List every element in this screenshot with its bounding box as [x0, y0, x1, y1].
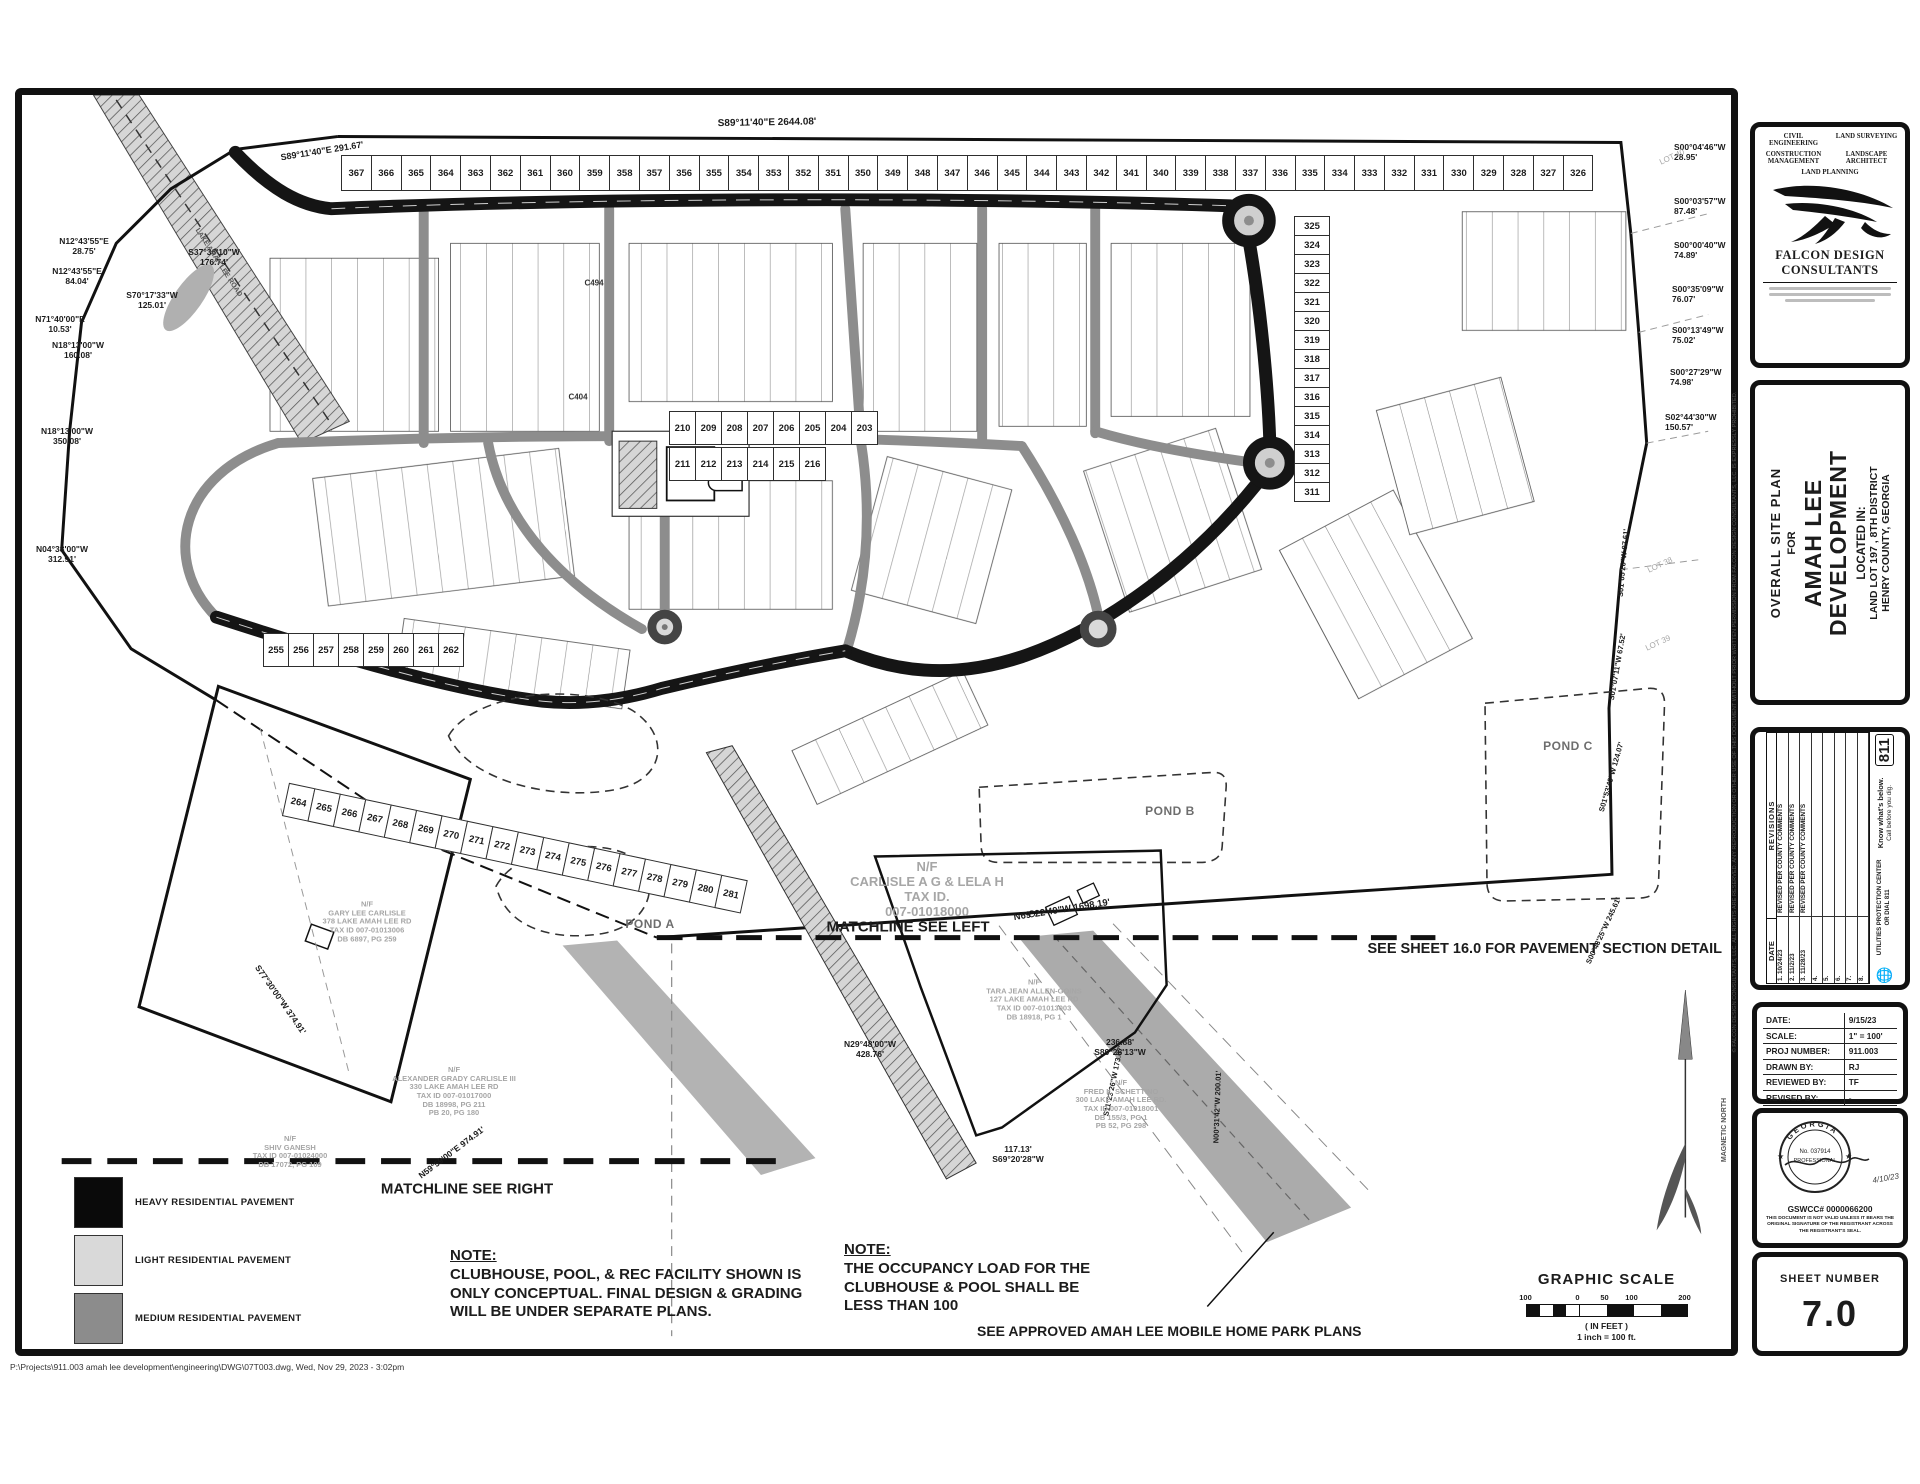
- bearing-label: N71°40'00"E10.53': [35, 315, 85, 335]
- revisions-title: REVISIONS: [1767, 733, 1776, 918]
- lot-number: 357: [639, 155, 670, 191]
- lot-number: 318: [1294, 349, 1330, 369]
- lot-number: 349: [877, 155, 908, 191]
- revision-desc: [1846, 733, 1857, 916]
- pond-label: POND C: [1543, 740, 1593, 754]
- lot-number: 344: [1026, 155, 1057, 191]
- lot-number: 209: [695, 411, 722, 445]
- info-label: PROJ NUMBER:: [1763, 1046, 1844, 1056]
- slogan-line1: Know what's below.: [1876, 777, 1885, 848]
- lot-number: 366: [371, 155, 402, 191]
- info-row: DATE:9/15/23: [1763, 1013, 1897, 1029]
- lot-number: 213: [721, 447, 748, 481]
- lot-number: 345: [997, 155, 1028, 191]
- lot-number: 326: [1563, 155, 1594, 191]
- for-label: FOR: [1786, 393, 1798, 693]
- info-value: RJ: [1844, 1060, 1897, 1075]
- lot-number: 321: [1294, 292, 1330, 312]
- legend-swatch: [74, 1235, 123, 1286]
- lot-number: 346: [967, 155, 998, 191]
- lot-number: 255: [263, 633, 289, 667]
- revision-date: 4.: [1812, 916, 1823, 983]
- bearing-label: N00°31'42"W 200.01': [1212, 1071, 1223, 1144]
- lot-number: 340: [1146, 155, 1177, 191]
- lot-number: 317: [1294, 368, 1330, 388]
- revision-desc: [1858, 733, 1869, 916]
- lot-number: 351: [818, 155, 849, 191]
- note-heading: NOTE:: [450, 1247, 880, 1266]
- revisions-header: DATE REVISIONS: [1767, 733, 1777, 983]
- lot-number: 329: [1473, 155, 1504, 191]
- revision-date: 6.: [1835, 916, 1846, 983]
- info-label: SCALE:: [1763, 1031, 1844, 1041]
- revision-row: 1. 10/24/23REVISED PER COUNTY COMMENTS: [1777, 733, 1789, 983]
- service-item: LANDSCAPE ARCHITECT: [1832, 151, 1901, 166]
- info-value: 911.003: [1844, 1044, 1897, 1059]
- info-block: DATE:9/15/23SCALE:1" = 100'PROJ NUMBER:9…: [1752, 1002, 1908, 1104]
- lot-number: 320: [1294, 311, 1330, 331]
- county: HENRY COUNTY, GEORGIA: [1880, 393, 1892, 693]
- revision-desc: REVISED PER COUNTY COMMENTS: [1789, 733, 1800, 916]
- firm-name-line1: FALCON DESIGN: [1775, 248, 1884, 262]
- lot-number: 333: [1354, 155, 1385, 191]
- lot-number: 358: [609, 155, 640, 191]
- revisions-rows: 1. 10/24/23REVISED PER COUNTY COMMENTS2.…: [1777, 733, 1869, 983]
- lot-number: 205: [799, 411, 826, 445]
- lot-number: 204: [825, 411, 852, 445]
- revision-date: 5.: [1823, 916, 1834, 983]
- info-value: TF: [1844, 1075, 1897, 1090]
- lot-number: 354: [728, 155, 759, 191]
- revisions-table: DATE REVISIONS 1. 10/24/23REVISED PER CO…: [1766, 732, 1870, 984]
- falcon-logo-icon: [1755, 178, 1905, 246]
- copyright-strip: © FALCON DESIGN CONSULTANTS, LLC. ALL RI…: [1728, 88, 1742, 1356]
- revision-date: 1. 10/24/23: [1777, 916, 1788, 983]
- info-row: REVISED BY:-: [1763, 1091, 1897, 1107]
- lot-number: 214: [747, 447, 774, 481]
- bearing-label: S00°35'09"W76.07': [1672, 285, 1724, 305]
- legend-label: MEDIUM RESIDENTIAL PAVEMENT: [135, 1313, 301, 1324]
- lot-number: 314: [1294, 425, 1330, 445]
- project-title-block: OVERALL SITE PLAN FOR AMAH LEE DEVELOPME…: [1750, 380, 1910, 705]
- bearing-label: N29°48'00"W428.76': [844, 1040, 896, 1060]
- adjacent-lot-label: LOT 39: [1644, 633, 1672, 653]
- graphic-scale: GRAPHIC SCALE 100050100200 ( IN FEET ) 1…: [1484, 1271, 1729, 1342]
- revision-row: 5.: [1823, 733, 1835, 983]
- note-line: LESS THAN 100: [844, 1297, 1124, 1316]
- lot-number: 361: [520, 155, 551, 191]
- info-table: DATE:9/15/23SCALE:1" = 100'PROJ NUMBER:9…: [1763, 1013, 1897, 1093]
- lot-number: 313: [1294, 444, 1330, 464]
- legend: HEAVY RESIDENTIAL PAVEMENTLIGHT RESIDENT…: [74, 1177, 301, 1349]
- date-header: DATE: [1767, 918, 1776, 983]
- lot-number: 260: [388, 633, 414, 667]
- adjacent-parcel-label: N/FTARA JEAN ALLEN-GOINS127 LAKE AMAH LE…: [986, 978, 1082, 1021]
- revision-row: 7.: [1846, 733, 1858, 983]
- lot-number: 258: [338, 633, 364, 667]
- bearing-label: S70°17'33"W125.01': [126, 291, 178, 311]
- firm-services: CIVIL ENGINEERINGLAND SURVEYINGCONSTRUCT…: [1755, 127, 1905, 178]
- seal-cert: No. 037914: [1799, 1149, 1831, 1155]
- bearing-label: N12°43'55"E28.75': [59, 237, 109, 257]
- lot-number: 323: [1294, 254, 1330, 274]
- lot-number: 322: [1294, 273, 1330, 293]
- bearing-label: S01°05'20"W 87.61': [1617, 529, 1632, 598]
- lot-number: 341: [1116, 155, 1147, 191]
- lot-number: 343: [1056, 155, 1087, 191]
- scale-bar: [1526, 1304, 1688, 1317]
- info-label: REVIEWED BY:: [1763, 1077, 1844, 1087]
- project-title-rotated: OVERALL SITE PLAN FOR AMAH LEE DEVELOPME…: [1768, 393, 1892, 693]
- lot-number: 328: [1503, 155, 1534, 191]
- info-value: 1" = 100': [1844, 1029, 1897, 1044]
- revision-desc: [1812, 733, 1823, 916]
- info-value: -: [1844, 1091, 1897, 1106]
- plan-sheet: S89°11'40"E 2644.08'S89°11'40"E 291.67'N…: [0, 0, 1920, 1484]
- lot-number: 356: [669, 155, 700, 191]
- note-occupancy: NOTE: THE OCCUPANCY LOAD FOR THE CLUBHOU…: [844, 1241, 1124, 1316]
- lot-number: 331: [1414, 155, 1445, 191]
- lot-number: 337: [1235, 155, 1266, 191]
- globe-icon: 🌐: [1876, 966, 1893, 983]
- service-item: CIVIL ENGINEERING: [1759, 133, 1828, 148]
- lot-number: 324: [1294, 235, 1330, 255]
- adjacent-parcel-label: N/FALEXANDER GRADY CARLISLE III330 LAKE …: [392, 1066, 516, 1118]
- map-annotation: C404: [568, 392, 587, 401]
- lot-number: 339: [1175, 155, 1206, 191]
- service-item: LAND PLANNING: [1759, 169, 1901, 176]
- firm-address-line: [1769, 293, 1891, 296]
- land-lot: LAND LOT 197 , 8TH DISTRICT: [1868, 393, 1880, 693]
- utilities-center-line1: UTILITIES PROTECTION CENTER: [1877, 859, 1883, 955]
- lot-number: 208: [721, 411, 748, 445]
- info-row: REVIEWED BY:TF: [1763, 1075, 1897, 1091]
- lot-strip: 255256257258259260261262: [264, 633, 464, 667]
- bearing-label: S01°53'49"W 124.07': [1598, 741, 1626, 813]
- seal-disclaimer: THIS DOCUMENT IS NOT VALID UNLESS IT BEA…: [1763, 1216, 1897, 1235]
- service-item: CONSTRUCTION MANAGEMENT: [1759, 151, 1828, 166]
- lot-number: 212: [695, 447, 722, 481]
- revision-desc: REVISED PER COUNTY COMMENTS: [1800, 733, 1811, 916]
- lot-number: 364: [430, 155, 461, 191]
- lot-number: 216: [799, 447, 826, 481]
- lot-number: 206: [773, 411, 800, 445]
- bearing-label: S00°00'40"W74.89': [1674, 241, 1726, 261]
- revision-row: 2. 11/2/23REVISED PER COUNTY COMMENTS: [1789, 733, 1801, 983]
- matchline-left-label: MATCHLINE SEE LEFT: [826, 919, 989, 936]
- sheet-number-label: SHEET NUMBER: [1757, 1273, 1903, 1285]
- legend-label: HEAVY RESIDENTIAL PAVEMENT: [135, 1197, 294, 1208]
- scale-units: ( IN FEET ): [1484, 1321, 1729, 1331]
- gswcc-number: GSWCC# 0000066200: [1757, 1204, 1903, 1214]
- sheet-number-block: SHEET NUMBER 7.0: [1752, 1252, 1908, 1356]
- revisions-block: DATE REVISIONS 1. 10/24/23REVISED PER CO…: [1750, 727, 1910, 990]
- drawing-frame: S89°11'40"E 2644.08'S89°11'40"E 291.67'N…: [15, 88, 1738, 1356]
- bearing-label: S00°27'29"W74.98': [1670, 368, 1722, 388]
- lot-number: 330: [1443, 155, 1474, 191]
- lot-number: 281: [714, 875, 747, 914]
- bearing-label: S89°11'40"E 2644.08': [718, 116, 817, 129]
- lot-number: 319: [1294, 330, 1330, 350]
- adjacent-parcel-label: N/FFRED L. SCHETTINO300 LAKE AMAH LEE RD…: [1076, 1079, 1167, 1131]
- legend-item: LIGHT RESIDENTIAL PAVEMENT: [74, 1235, 301, 1286]
- note-line: CLUBHOUSE & POOL SHALL BE: [844, 1279, 1124, 1298]
- lot-number: 257: [313, 633, 339, 667]
- plan-type: OVERALL SITE PLAN: [1768, 393, 1783, 693]
- lot-number: 316: [1294, 387, 1330, 407]
- legend-swatch: [74, 1293, 123, 1344]
- note-clubhouse: NOTE: CLUBHOUSE, POOL, & REC FACILITY SH…: [450, 1247, 880, 1322]
- lot-number: 359: [579, 155, 610, 191]
- firm-address-line: [1769, 287, 1891, 290]
- bearing-label: S00°03'57"W87.48': [1674, 197, 1726, 217]
- legend-item: HEAVY RESIDENTIAL PAVEMENT: [74, 1177, 301, 1228]
- scale-tick: 0: [1575, 1293, 1579, 1302]
- bearing-label: N59°59'00"E 974.91': [417, 1125, 487, 1181]
- revision-row: 6.: [1835, 733, 1847, 983]
- lot-number: 256: [288, 633, 314, 667]
- lot-number: 336: [1265, 155, 1296, 191]
- lot-number: 215: [773, 447, 800, 481]
- revision-row: 3. 11/28/23REVISED PER COUNTY COMMENTS: [1800, 733, 1812, 983]
- call-811: 🌐 UTILITIES PROTECTION CENTER OR DIAL 81…: [1875, 734, 1894, 984]
- lot-number: 347: [937, 155, 968, 191]
- firm-block: CIVIL ENGINEERINGLAND SURVEYINGCONSTRUCT…: [1750, 122, 1910, 368]
- lot-number: 334: [1324, 155, 1355, 191]
- lot-number: 350: [848, 155, 879, 191]
- firm-name-line2: CONSULTANTS: [1781, 263, 1878, 277]
- lot-number: 348: [907, 155, 938, 191]
- info-row: DRAWN BY:RJ: [1763, 1060, 1897, 1076]
- info-label: REVISED BY:: [1763, 1093, 1844, 1103]
- lot-number: 362: [490, 155, 521, 191]
- revision-row: 8.: [1858, 733, 1870, 983]
- lot-number: 352: [788, 155, 819, 191]
- bearing-label: N18°13'00"W160.08': [52, 341, 104, 361]
- bearing-label: N12°43'55"E84.04': [52, 267, 102, 287]
- pavement-detail-note: SEE SHEET 16.0 FOR PAVEMENT SECTION DETA…: [1222, 941, 1722, 957]
- utilities-center-line2: OR DIAL 811: [1885, 889, 1891, 925]
- located-label: LOCATED IN:: [1856, 393, 1868, 693]
- lot-strip: 210209208207206205204203: [670, 411, 878, 445]
- seal-block: GEORGIA No. 037914 PROFESSIONAL ★ ★ 4/10…: [1752, 1108, 1908, 1248]
- lot-number: 367: [341, 155, 372, 191]
- note-line: WILL BE UNDER SEPARATE PLANS.: [450, 1303, 880, 1322]
- project-name-1: AMAH LEE: [1801, 393, 1826, 693]
- graphic-scale-title: GRAPHIC SCALE: [1484, 1271, 1729, 1288]
- call811-slogan: Know what's below. Call before you dig.: [1876, 777, 1894, 848]
- lot-number: 325: [1294, 216, 1330, 236]
- lot-strip: 3253243233223213203193183173163153143133…: [1294, 217, 1330, 502]
- adjacent-lot-label: LOT 38: [1646, 555, 1674, 575]
- lot-number: 262: [438, 633, 464, 667]
- lot-strip: 3673663653643633623613603593583573563553…: [342, 155, 1593, 191]
- bearing-label: S01°07'11"W 67.52': [1608, 633, 1628, 701]
- lot-number: 342: [1086, 155, 1117, 191]
- info-label: DATE:: [1763, 1015, 1844, 1025]
- lot-number: 203: [851, 411, 878, 445]
- utilities-center: UTILITIES PROTECTION CENTER OR DIAL 811: [1877, 859, 1891, 955]
- revision-date: 8.: [1858, 916, 1869, 983]
- lot-number: 312: [1294, 463, 1330, 483]
- bearing-label: S00°13'49"W75.02': [1672, 326, 1724, 346]
- firm-name: FALCON DESIGN CONSULTANTS: [1763, 248, 1897, 283]
- lot-number: 311: [1294, 482, 1330, 502]
- legend-swatch: [74, 1177, 123, 1228]
- revision-date: 3. 11/28/23: [1800, 916, 1811, 983]
- info-row: PROJ NUMBER:911.003: [1763, 1044, 1897, 1060]
- adjacent-parcel-label: N/FSHIV GANESHTAX ID 007-01024000DB 1707…: [253, 1135, 328, 1170]
- revisions-rotated: DATE REVISIONS 1. 10/24/23REVISED PER CO…: [1766, 734, 1894, 984]
- bearing-label: S02°44'30"W150.57': [1665, 413, 1717, 433]
- sheet-number-value: 7.0: [1757, 1293, 1903, 1335]
- adjacent-parcel-label: N/FGARY LEE CARLISLE378 LAKE AMAH LEE RD…: [323, 900, 412, 943]
- scale-tick: 100: [1625, 1293, 1638, 1302]
- copyright-text: © FALCON DESIGN CONSULTANTS, LLC. ALL RI…: [1732, 392, 1738, 1053]
- mobile-home-callout: SEE APPROVED AMAH LEE MOBILE HOME PARK P…: [977, 1323, 1417, 1339]
- bearing-label: N04°38'00"W312.91': [36, 545, 88, 565]
- project-name-2: DEVELOPMENT: [1827, 393, 1852, 693]
- legend-item: MEDIUM RESIDENTIAL PAVEMENT: [74, 1293, 301, 1344]
- map-annotation: C494: [584, 278, 603, 287]
- bearing-label: 117.13'S69°20'28"W: [992, 1145, 1044, 1165]
- lot-number: 353: [758, 155, 789, 191]
- adjacent-lot-label: LOT 40: [1658, 147, 1686, 167]
- revision-date: 2. 11/2/23: [1789, 916, 1800, 983]
- slogan-line2: Call before you dig.: [1886, 784, 1893, 840]
- lot-number: 335: [1295, 155, 1326, 191]
- matchline-right-label: MATCHLINE SEE RIGHT: [381, 1181, 553, 1198]
- lot-number: 338: [1205, 155, 1236, 191]
- lot-number: 327: [1533, 155, 1564, 191]
- info-row: SCALE:1" = 100': [1763, 1029, 1897, 1045]
- bearing-label: N18°13'00"W350.08': [41, 427, 93, 447]
- lot-number: 261: [413, 633, 439, 667]
- service-item: LAND SURVEYING: [1832, 133, 1901, 148]
- pond-label: POND A: [625, 918, 674, 932]
- badge-811: 811: [1875, 734, 1894, 766]
- scale-tick: 100: [1519, 1293, 1532, 1302]
- note-line: CLUBHOUSE, POOL, & REC FACILITY SHOWN IS: [450, 1266, 880, 1285]
- bearing-label: N69°22'49"W 1698.19': [1013, 898, 1111, 924]
- lot-number: 211: [669, 447, 696, 481]
- plot-file-path: P:\Projects\911.003 amah lee development…: [10, 1362, 404, 1372]
- revision-row: 4.: [1812, 733, 1824, 983]
- bearing-label: S77°30'00"W 374.91': [253, 964, 308, 1037]
- lot-number: 259: [363, 633, 389, 667]
- legend-label: LIGHT RESIDENTIAL PAVEMENT: [135, 1255, 291, 1266]
- info-label: DRAWN BY:: [1763, 1062, 1844, 1072]
- lot-number: 207: [747, 411, 774, 445]
- note-line: ONLY CONCEPTUAL. FINAL DESIGN & GRADING: [450, 1285, 880, 1304]
- lot-number: 363: [460, 155, 491, 191]
- pond-label: POND B: [1145, 805, 1195, 819]
- lot-number: 355: [699, 155, 730, 191]
- lot-number: 360: [550, 155, 581, 191]
- note-heading: NOTE:: [844, 1241, 1124, 1260]
- info-value: 9/15/23: [1844, 1013, 1897, 1028]
- scale-ratio: 1 inch = 100 ft.: [1484, 1332, 1729, 1342]
- lot-strip: 211212213214215216: [670, 447, 826, 481]
- revision-date: 7.: [1846, 916, 1857, 983]
- firm-address-line: [1785, 299, 1875, 302]
- revision-desc: [1835, 733, 1846, 916]
- svg-text:★: ★: [1777, 1152, 1784, 1161]
- lot-number: 365: [401, 155, 432, 191]
- lot-strip: 2642652662672682692702712722732742752762…: [283, 783, 748, 914]
- pe-seal: GEORGIA No. 037914 PROFESSIONAL ★ ★ 4/10…: [1757, 1113, 1903, 1199]
- map-labels: S89°11'40"E 2644.08'S89°11'40"E 291.67'N…: [22, 95, 1731, 1349]
- adjacent-parcel-label: N/FCARLISLE A G & LELA HTAX ID.007-01018…: [850, 860, 1004, 920]
- revision-desc: [1823, 733, 1834, 916]
- lot-number: 332: [1384, 155, 1415, 191]
- scale-tick: 200: [1678, 1293, 1691, 1302]
- revision-desc: REVISED PER COUNTY COMMENTS: [1777, 733, 1788, 916]
- lot-number: 210: [669, 411, 696, 445]
- seal-date: 4/10/23: [1872, 1171, 1900, 1185]
- scale-tick: 50: [1600, 1293, 1608, 1302]
- lot-number: 315: [1294, 406, 1330, 426]
- note-line: THE OCCUPANCY LOAD FOR THE: [844, 1260, 1124, 1279]
